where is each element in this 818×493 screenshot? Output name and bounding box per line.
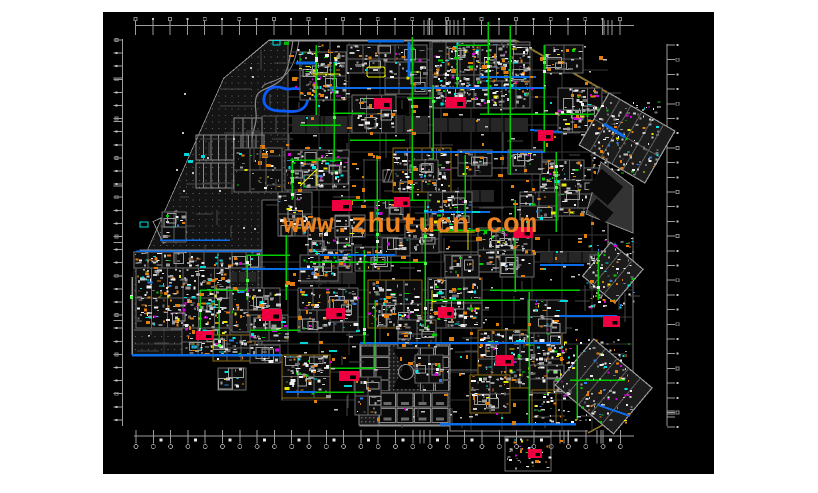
svg-text:www.zhutucn.com: www.zhutucn.com bbox=[283, 210, 537, 241]
